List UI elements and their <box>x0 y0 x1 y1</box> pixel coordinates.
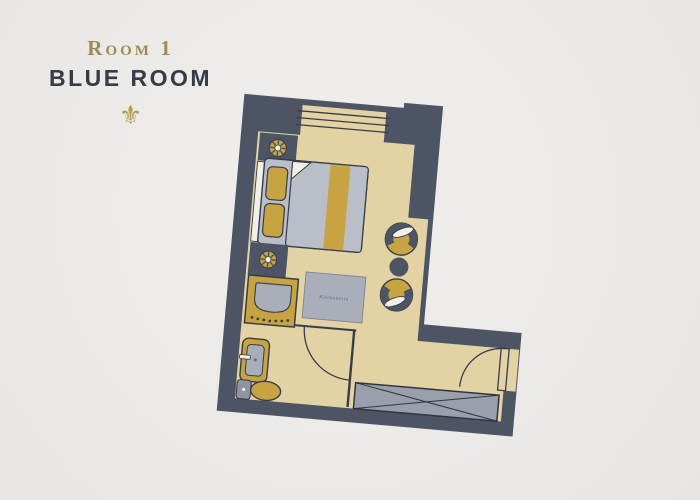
sink <box>237 338 270 383</box>
kitchenette: Kitchenette <box>302 272 366 323</box>
nightstand-bottom <box>248 242 289 278</box>
tv-cabinet <box>244 275 298 327</box>
tv-screen <box>254 283 292 314</box>
floor-plan: Kitchenette <box>0 0 700 500</box>
faucet-icon <box>239 354 250 359</box>
pillow <box>265 166 288 201</box>
bed <box>250 157 368 252</box>
pillow <box>262 203 285 238</box>
page-background: { "header": { "room_number": "Room 1", "… <box>0 0 700 500</box>
